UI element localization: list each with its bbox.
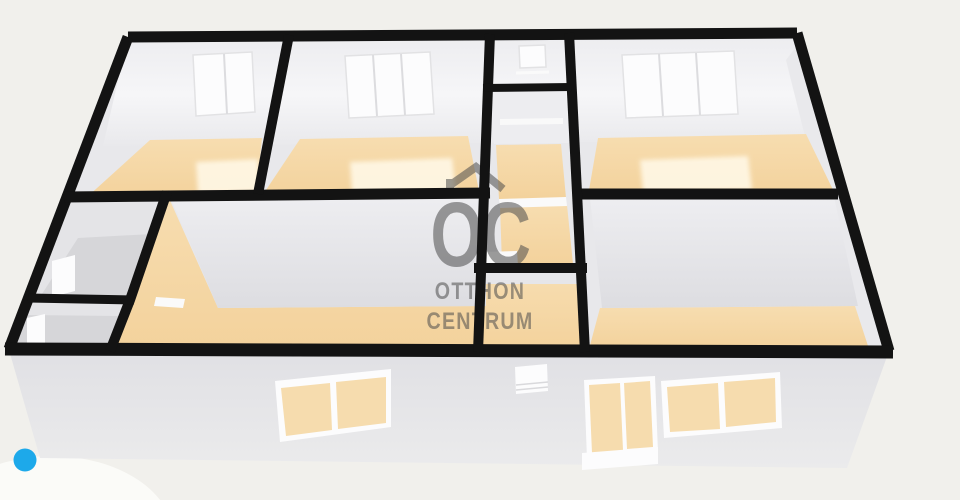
floorplan-3d-view[interactable]: OC OTTHON CENTRUM [0,0,960,500]
front-right-room-floor [589,306,869,349]
closet-wall-cap [483,87,571,88]
corridor-closet-face [487,90,569,144]
floorplan-viewer: OC OTTHON CENTRUM [0,0,960,500]
bedroom-2-window [345,52,434,118]
location-dot[interactable] [14,449,37,472]
front-right-room-back-wall-face [590,197,858,308]
bathroom-window [52,255,75,297]
facade-vent [515,364,548,394]
mid-wall-left-cap [64,193,490,197]
bedroom-3-window [622,51,738,118]
facade-entry-door [582,376,658,470]
corridor-small-window [519,45,546,68]
facade-window-right [661,372,782,438]
front-wall-cap [5,349,893,352]
back-wall-cap [128,33,797,37]
bathroom-divider-cap [28,298,134,300]
